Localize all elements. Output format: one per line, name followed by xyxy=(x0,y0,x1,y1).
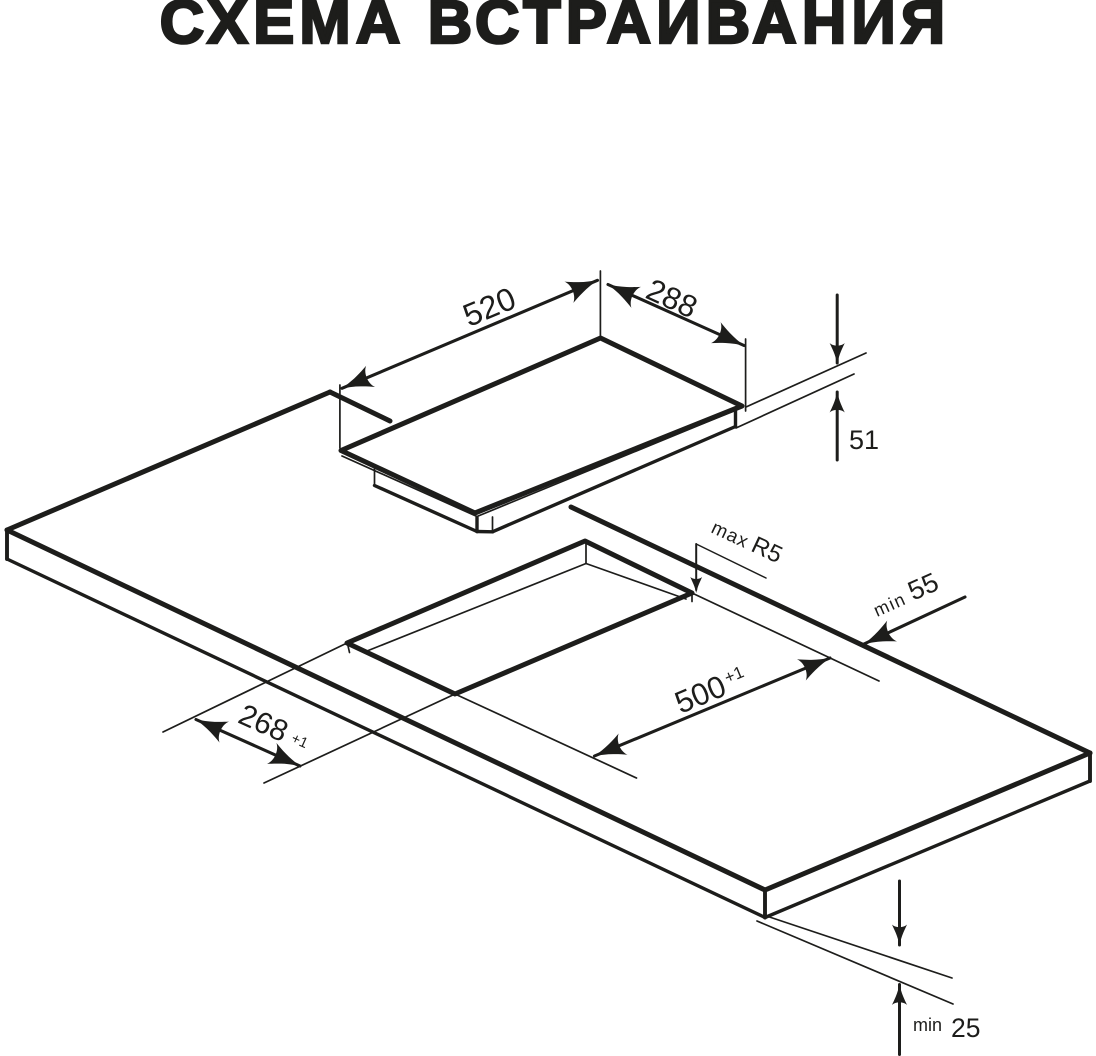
svg-text:268+1: 268+1 xyxy=(234,698,315,758)
svg-text:51: 51 xyxy=(849,425,879,455)
svg-text:min: min xyxy=(913,1015,942,1035)
svg-text:500+1: 500+1 xyxy=(670,660,752,721)
svg-text:288: 288 xyxy=(641,272,703,325)
svg-text:25: 25 xyxy=(951,1013,980,1043)
svg-text:520: 520 xyxy=(458,280,521,334)
svg-text:maxR5: maxR5 xyxy=(707,513,786,569)
